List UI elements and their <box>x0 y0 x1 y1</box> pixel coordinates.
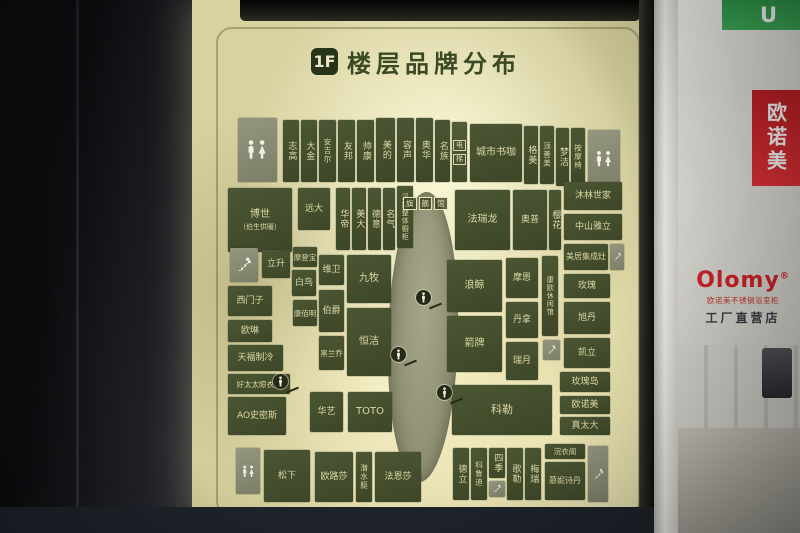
block-label: 维卫 <box>322 265 340 276</box>
map-block: 立升 <box>262 250 290 278</box>
block-label: 玫瑰岛 <box>571 377 598 388</box>
map-block: 潜水艇 <box>356 452 372 502</box>
block-label: 浣衣阁 <box>554 447 577 456</box>
block-label: 慕妮诗丹 <box>549 476 581 486</box>
map-block: 浣衣阁 <box>545 444 585 459</box>
map-block: 天福制冷 <box>228 345 283 371</box>
left-wall <box>0 0 194 533</box>
block-label: 城市书咖 <box>476 147 516 159</box>
block-label: 浪鲸 <box>465 280 485 292</box>
block-sublabel: （伯生供暖） <box>239 223 281 231</box>
map-block: 顶善美 <box>540 126 554 184</box>
sign-base-shadow <box>0 507 658 533</box>
map-block: 志高 <box>283 120 299 182</box>
map-block: 康欧休闲馆 <box>542 256 558 336</box>
stairs-icon <box>546 344 557 356</box>
map-block: 大金 <box>301 120 317 182</box>
block-label: 德立 <box>456 464 467 484</box>
trash-bin <box>762 348 792 398</box>
atrium-label-box: 旗 <box>403 197 417 210</box>
map-block: 美居集成灶 <box>564 244 608 270</box>
person-icon <box>277 376 284 387</box>
block-label: 歌勒 <box>510 464 521 484</box>
mall-floor <box>678 428 800 533</box>
store-sign-letter: U <box>760 3 777 27</box>
atrium-label-box: 舰 <box>419 197 433 210</box>
stairs-block <box>230 248 258 282</box>
map-block: 旭丹 <box>564 302 610 334</box>
map-block: 康佰明 <box>293 300 317 326</box>
map-block: 城市书咖 <box>470 124 522 182</box>
boxed-char: 梯 <box>453 154 466 165</box>
block-label: 立升 <box>267 259 285 270</box>
restroom-icon <box>594 142 614 176</box>
location-marker <box>273 374 288 389</box>
block-label: 奥华 <box>419 140 430 160</box>
stairs-icon <box>613 249 622 264</box>
map-block: 帅康 <box>357 120 374 182</box>
olomy-logo: Olomy® <box>686 270 800 292</box>
block-label: 远大 <box>305 204 323 215</box>
block-label: 白鸟 <box>295 278 313 289</box>
person-icon <box>420 292 427 303</box>
map-block: 维卫 <box>319 255 344 285</box>
map-block: 摩恩 <box>506 258 538 298</box>
block-label: TOTO <box>356 406 384 418</box>
atrium-labels: 旗舰馆 <box>403 197 448 210</box>
block-label: 天福制冷 <box>237 353 273 364</box>
block-label: 欧琳 <box>241 326 259 337</box>
map-block: TOTO <box>348 392 392 432</box>
block-label: 四季 <box>492 453 503 473</box>
block-label: 沐林世家 <box>575 191 611 202</box>
map-block: AO史密斯 <box>228 397 286 435</box>
location-marker <box>416 290 431 305</box>
block-label: 摩恩 <box>513 273 531 284</box>
storefront-photo: 1F 楼层品牌分布 旗舰馆 志高大金安吉尔友邦帅康美的容声奥华名族电梯城市书咖格… <box>0 0 800 533</box>
person-icon <box>441 387 448 398</box>
block-label: 容声 <box>400 140 411 160</box>
map-block: 名族 <box>435 120 450 182</box>
block-label: 美的 <box>380 140 391 160</box>
olomy-logo-wall: Olomy® 欧诺美不锈钢浴室柜 工厂直营店 <box>686 270 800 326</box>
map-block: 凯立 <box>564 338 610 368</box>
map-block: 华帝 <box>336 188 350 250</box>
floor-map: 旗舰馆 志高大金安吉尔友邦帅康美的容声奥华名族电梯城市书咖格美顶善美梦洁按摩椅博… <box>192 0 640 522</box>
map-block: 远大 <box>298 188 330 230</box>
block-label: 旭丹 <box>578 313 596 324</box>
pillar <box>654 0 678 533</box>
olomy-logo-text: Olomy <box>696 268 780 293</box>
block-label: 友邦 <box>341 141 352 161</box>
map-block: 箭牌 <box>447 316 502 372</box>
map-block: 摩登宝 <box>293 247 317 267</box>
block-label: 箭牌 <box>465 338 485 350</box>
location-marker <box>437 385 452 400</box>
block-label: 潜水艇 <box>360 464 369 490</box>
olomy-tagline: 工厂直营店 <box>686 309 800 326</box>
block-label: 法恩莎 <box>384 472 411 483</box>
map-block: 格美 <box>524 126 538 184</box>
restroom-block <box>238 118 277 182</box>
block-label: 摩登宝 <box>294 253 317 262</box>
restroom-block <box>236 448 260 494</box>
map-block: 真太大 <box>560 417 610 435</box>
block-label: 德意 <box>369 209 380 229</box>
map-block: 法瑞龙 <box>455 190 510 250</box>
map-block: 德立 <box>453 448 469 500</box>
block-label: 帅康 <box>360 141 371 161</box>
map-block: 九牧 <box>347 255 391 303</box>
block-label: 博世 <box>250 209 270 221</box>
map-block: 恒洁 <box>347 308 391 376</box>
map-block: 丹拿 <box>506 302 538 338</box>
map-block: 黑兰乔 <box>319 336 344 370</box>
block-label: 名气 <box>384 209 395 229</box>
map-block: 欧路莎 <box>315 452 353 502</box>
block-label: 按摩椅 <box>574 144 583 170</box>
stairs-icon <box>592 458 604 490</box>
map-block: 四季 <box>489 448 505 478</box>
block-label: 九牧 <box>359 273 379 285</box>
map-block: 容声 <box>397 118 414 182</box>
block-label: 志高 <box>286 141 297 161</box>
map-block: 樱花 <box>549 190 561 250</box>
map-block: 安吉尔 <box>319 120 336 182</box>
map-block: 西门子 <box>228 286 272 316</box>
map-block: 美大 <box>352 188 366 250</box>
map-block: 白鸟 <box>292 270 316 296</box>
stairs-block <box>489 481 505 497</box>
olomy-subtitle: 欧诺美不锈钢浴室柜 <box>686 295 800 306</box>
map-block: 奥华 <box>416 118 433 182</box>
block-label: 梦洁 <box>557 147 568 167</box>
block-label: 欧诺美 <box>571 400 598 411</box>
map-block: 伯爵 <box>319 290 344 332</box>
map-block: 按摩椅 <box>571 128 585 186</box>
block-label: 科鲁迪 <box>475 461 484 487</box>
block-label: 华艺 <box>317 407 335 418</box>
map-block: 汉斯整体橱柜 <box>397 186 413 248</box>
map-block: 华艺 <box>310 392 343 432</box>
block-label: AO史密斯 <box>237 411 277 422</box>
map-block: 奥普 <box>513 190 547 250</box>
map-block: 博世（伯生供暖） <box>228 188 292 252</box>
map-block: 科鲁迪 <box>471 448 487 500</box>
block-label: 伯爵 <box>322 306 340 317</box>
map-block: 沐林世家 <box>564 182 622 210</box>
block-label: 梅瑞 <box>528 464 539 484</box>
block-label: 法瑞龙 <box>468 214 498 226</box>
map-block: 松下 <box>264 450 310 502</box>
map-block: 中山雅立 <box>564 214 622 240</box>
red-vertical-banner: 欧诺美 <box>752 90 800 186</box>
map-block: 欧诺美 <box>560 396 610 414</box>
map-block: 友邦 <box>338 120 355 182</box>
map-block: 慕妮诗丹 <box>545 462 585 500</box>
block-label: 恒洁 <box>359 336 379 348</box>
block-label: 丹拿 <box>513 315 531 326</box>
restroom-icon <box>245 131 269 168</box>
block-label: 大金 <box>304 141 315 161</box>
map-block: 玫瑰岛 <box>560 372 610 392</box>
block-label: 美居集成灶 <box>566 252 606 262</box>
map-block: 法恩莎 <box>375 452 421 502</box>
map-block: 电梯 <box>452 122 467 182</box>
block-label: 松下 <box>278 471 296 482</box>
wall-edge-highlight <box>76 0 79 533</box>
block-label: 西门子 <box>236 296 263 307</box>
registered-mark: ® <box>780 272 790 282</box>
stairs-block <box>588 446 608 502</box>
block-label: 名族 <box>437 141 448 161</box>
block-label: 樱花 <box>550 210 561 230</box>
map-block: 德意 <box>368 188 381 250</box>
storefront-scene: U 欧诺美 Olomy® 欧诺美不锈钢浴室柜 工厂直营店 <box>654 0 800 533</box>
block-label: 康欧休闲馆 <box>546 276 554 316</box>
atrium-label-box: 馆 <box>434 197 448 210</box>
stairs-block <box>610 244 624 270</box>
map-block: 浪鲸 <box>447 260 502 312</box>
block-label: 中山雅立 <box>575 222 611 233</box>
location-marker <box>391 347 406 362</box>
block-label: 安吉尔 <box>323 138 332 164</box>
map-block: 美的 <box>376 118 395 182</box>
block-label: 康佰明 <box>294 309 317 318</box>
block-label: 黑兰乔 <box>320 349 343 358</box>
sign-right-frame <box>639 0 654 522</box>
restroom-icon <box>241 458 256 485</box>
block-label: 华帝 <box>338 209 349 229</box>
block-label: 科勒 <box>491 403 513 416</box>
map-block: 科勒 <box>452 385 552 435</box>
stairs-icon <box>492 484 502 493</box>
map-block: 瑞月 <box>506 342 538 380</box>
green-store-sign: U <box>722 0 800 30</box>
map-block: 玫瑰 <box>564 274 610 298</box>
stairs-icon <box>235 255 252 275</box>
map-block: 歌勒 <box>507 448 523 500</box>
map-block: 梦洁 <box>556 128 569 186</box>
block-label: 格美 <box>526 145 537 165</box>
boxed-char: 电 <box>453 140 466 151</box>
map-block: 欧琳 <box>228 320 272 342</box>
block-label: 美大 <box>354 209 365 229</box>
block-label: 真太大 <box>571 421 598 432</box>
person-icon <box>395 349 402 360</box>
directory-lightbox-sign: 1F 楼层品牌分布 旗舰馆 志高大金安吉尔友邦帅康美的容声奥华名族电梯城市书咖格… <box>192 0 650 522</box>
block-label: 玫瑰 <box>578 281 596 292</box>
map-block: 梅瑞 <box>525 448 541 500</box>
block-label: 凯立 <box>578 348 596 359</box>
block-label: 欧路莎 <box>320 472 347 483</box>
restroom-block <box>588 130 620 188</box>
block-label: 顶善美 <box>543 142 552 168</box>
block-label: 奥普 <box>521 215 539 226</box>
map-block: 名气 <box>383 188 395 250</box>
block-label: 瑞月 <box>513 356 531 367</box>
stairs-block <box>543 340 560 360</box>
